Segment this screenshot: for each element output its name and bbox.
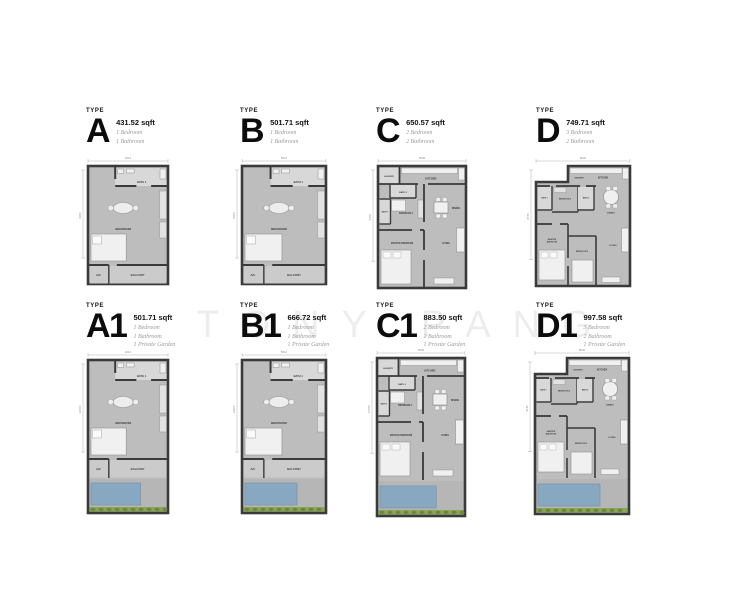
shrub [593, 509, 598, 512]
room-label-dining: DINING [607, 213, 615, 215]
room-label-dining: DINING [451, 399, 460, 402]
sofa [457, 228, 465, 252]
sofa [456, 420, 464, 444]
unit-feature: 1 Bedroom [116, 129, 155, 138]
unit-feature: 1 Bathroom [133, 333, 175, 342]
floorplan-D1: 80929745LAUNDRYKITCHENBATH 1BEDROOM 3BAT… [523, 347, 634, 523]
room-label-bath1: BATH 1 [381, 403, 388, 406]
bed [571, 452, 592, 474]
dimension-label: 5012 [281, 156, 288, 160]
shrub [154, 508, 159, 511]
unit-feature: 2 Bathroom [566, 138, 605, 147]
balcony-area [90, 266, 167, 284]
shrub [379, 511, 384, 514]
chair [605, 379, 610, 383]
shrub [585, 509, 590, 512]
dimension-label: 8092 [580, 156, 587, 160]
tv-console [602, 277, 620, 283]
unit-type-letter: C1 [376, 312, 416, 341]
room-label-bath1: BATH 1 [294, 374, 304, 378]
shrub [308, 508, 313, 511]
stage: TONY PANG TYPE A 431.52 sqft 1 Bedroom 1… [0, 0, 735, 600]
chair [442, 406, 447, 410]
room-label-bedroom2: BEDROOM 2 [398, 405, 413, 407]
sink [282, 169, 290, 173]
shrub [395, 511, 400, 514]
unit-area: 666.72 sqft [287, 313, 329, 322]
chair [442, 390, 447, 394]
shrub [90, 508, 95, 511]
shrub [292, 508, 297, 511]
fridge [622, 360, 628, 371]
table [113, 397, 133, 408]
room-label-bedroom2: BEDROOM 2 [576, 251, 589, 253]
room-label-bedroom: BEDROOM [271, 227, 287, 231]
cabinet [318, 222, 325, 238]
tv-console [434, 278, 454, 284]
room-label-living: LIVING [441, 434, 449, 437]
sink [282, 363, 290, 367]
fridge [459, 168, 465, 180]
shrub [451, 511, 456, 514]
shower [318, 363, 324, 373]
floorplan-svg: 80929745LAUNDRYKITCHENBATH 1BEDROOM 3BAT… [523, 347, 634, 518]
shrub [435, 511, 440, 514]
bed [572, 260, 593, 282]
room-label-bedroom3: BEDROOM 3 [559, 199, 572, 201]
dimension-label: 4012 [125, 156, 132, 160]
shrub [122, 508, 127, 511]
fridge [458, 360, 464, 372]
room-label-bedroom2: BEDROOM 2 [399, 213, 414, 215]
pillow [541, 252, 548, 258]
unit-feature: 1 Bathroom [116, 138, 155, 147]
unit-feature: 3 Bedroom [566, 129, 605, 138]
room-label-ac: A/C [251, 467, 256, 471]
floorplan-svg: 50129300A/CBALCONYBATH 1BEDROOM [230, 155, 331, 288]
floorplan-D: 80928745LAUNDRYKITCHENBATH 1BEDROOM 3BAT… [524, 155, 635, 295]
sofa [621, 420, 628, 444]
unit-feature: 2 Bedroom [406, 129, 445, 138]
chair [289, 399, 295, 405]
shrub [300, 508, 305, 511]
unit-feature: 2 Bathroom [423, 333, 465, 342]
shower [160, 169, 166, 179]
chair [133, 399, 139, 405]
unit-card-C: TYPE C 650.57 sqft 2 Bedroom 2 Bathroom [376, 108, 526, 146]
dimension-label: 9745 [525, 405, 529, 412]
pool [538, 484, 600, 506]
unit-feature: 1 Bedroom [133, 324, 175, 333]
shrub [617, 509, 622, 512]
room-label-bedroom3: BEDROOM 3 [558, 391, 571, 393]
unit-area: 997.58 sqft [583, 313, 625, 322]
shrub [403, 511, 408, 514]
kitchen-counter [570, 168, 622, 174]
unit-card-D1: TYPE D1 997.58 sqft 3 Bedroom 2 Bathroom… [536, 303, 686, 350]
room-label-laundry: LAUNDRY [574, 177, 584, 180]
room-label-kitchen: KITCHEN [425, 178, 436, 181]
wardrobe [318, 385, 325, 413]
floorplan-sheet: { "watermark": "TONY PANG", "colors": { … [0, 0, 735, 600]
pillow [247, 236, 256, 244]
chair [443, 198, 448, 202]
sink [126, 363, 134, 367]
pillow [540, 444, 547, 450]
unit-type-letter: C [376, 117, 399, 146]
cabinet [160, 222, 167, 238]
pillow [383, 252, 391, 258]
dining-table [603, 382, 618, 397]
dimension-label: 4012 [125, 350, 132, 354]
unit-feature: 1 Bedroom [287, 324, 329, 333]
pillow [393, 252, 401, 258]
shrub [553, 509, 558, 512]
unit-feature: 2 Bedroom [423, 324, 465, 333]
shrub [244, 508, 249, 511]
room-label-balcony: BALCONY [287, 467, 301, 471]
floorplan-svg: 553512030LAUNDRYKITCHENBATH 2BEDROOM 2BA… [365, 347, 470, 520]
cabinet [160, 416, 167, 432]
shrub [268, 508, 273, 511]
shrub [443, 511, 448, 514]
room-label-balcony: BALCONY [131, 273, 145, 277]
shrub [276, 508, 281, 511]
toilet [273, 363, 279, 368]
wardrobe [554, 188, 566, 193]
room-label-kitchen: KITCHEN [424, 370, 435, 373]
floorplan-A: 40129300A/CBALCONYBATH 1BEDROOM [76, 155, 173, 293]
shrub [459, 511, 464, 514]
chair [289, 205, 295, 211]
room-label-bath1: BATH 1 [541, 197, 547, 200]
dining-table [433, 394, 447, 405]
floorplan-C1: 553512030LAUNDRYKITCHENBATH 2BEDROOM 2BA… [365, 347, 470, 525]
room-label-bath2: BATH 2 [399, 191, 408, 194]
dining-table [604, 190, 619, 205]
dimension-label: 9300 [232, 212, 236, 219]
pillow [392, 444, 400, 450]
unit-type-letter: A1 [86, 312, 126, 341]
chair [435, 406, 440, 410]
room-label-living: LIVING [609, 245, 617, 247]
floorplan-svg: 55359300LAUNDRYKITCHENBATH 2BEDROOM 2BAT… [366, 155, 471, 292]
dimension-label: 9300 [78, 212, 82, 219]
bed [391, 392, 405, 403]
shrub [601, 509, 606, 512]
tv-console [433, 470, 453, 476]
kitchen-counter [569, 360, 621, 366]
wardrobe [318, 191, 325, 219]
room-label-laundry: LAUNDRY [573, 369, 583, 372]
pillow [549, 444, 556, 450]
room-label-bath2: BATH 2 [582, 389, 588, 392]
floorplan-B: 50129300A/CBALCONYBATH 1BEDROOM [230, 155, 331, 293]
kitchen-counter [402, 168, 458, 174]
table [113, 203, 133, 214]
unit-feature: 2 Bathroom [583, 333, 625, 342]
sofa [622, 228, 629, 252]
chair [133, 205, 139, 211]
shrub [260, 508, 265, 511]
room-label-bath2: BATH 2 [398, 383, 407, 386]
toilet [273, 169, 279, 174]
unit-card-A: TYPE A 431.52 sqft 1 Bedroom 1 Bathroom [86, 108, 236, 146]
chair [443, 214, 448, 218]
unit-feature: 2 Bathroom [406, 138, 445, 147]
chair [605, 396, 610, 400]
balcony-area [90, 460, 167, 478]
room-label-bedroom: BEDROOM [115, 421, 131, 425]
shrub [569, 509, 574, 512]
unit-card-B1: TYPE B1 666.72 sqft 1 Bedroom 1 Bathroom… [240, 303, 390, 350]
room-label-bedroom: BEDROOM [271, 421, 287, 425]
wardrobe [417, 392, 423, 410]
shrub [609, 509, 614, 512]
dimension-label: 12030 [367, 405, 371, 413]
shrub [537, 509, 542, 512]
chair [612, 379, 617, 383]
kitchen-counter [401, 360, 457, 366]
toilet [118, 169, 124, 174]
floorplan-svg: 501212000A/CBALCONYBATH 1BEDROOM [230, 349, 331, 517]
room-label-bath1: BATH 1 [137, 374, 147, 378]
unit-feature: 3 Bedroom [583, 324, 625, 333]
room-label-master: MASTER BEDROOM [391, 242, 413, 245]
shrub [98, 508, 103, 511]
shower [318, 169, 324, 179]
unit-type-letter: B1 [240, 312, 280, 341]
room-label-bedroom2: BEDROOM 2 [575, 443, 588, 445]
chair [264, 399, 270, 405]
unit-type-letter: B [240, 117, 263, 146]
room-label-bath1: BATH 1 [137, 180, 147, 184]
room-label-bath1: BATH 1 [382, 211, 389, 214]
chair [613, 204, 618, 208]
floorplan-svg: 40129300A/CBALCONYBATH 1BEDROOM [76, 155, 173, 288]
pool [380, 486, 436, 508]
shrub [577, 509, 582, 512]
balcony-area [244, 266, 325, 284]
shrub [252, 508, 257, 511]
room-label-balcony: BALCONY [131, 467, 145, 471]
chair [264, 205, 270, 211]
room-label-kitchen: KITCHEN [597, 370, 608, 372]
room-label-kitchen: KITCHEN [598, 178, 609, 180]
wardrobe [418, 200, 424, 218]
dimension-label: 8092 [579, 348, 586, 352]
balcony-area [244, 460, 325, 478]
dimension-label: 12000 [78, 405, 82, 413]
shrub [411, 511, 416, 514]
table [269, 397, 289, 408]
floorplan-C: 55359300LAUNDRYKITCHENBATH 2BEDROOM 2BAT… [366, 155, 471, 297]
room-label-master: MASTERBEDROOM [546, 430, 557, 436]
unit-card-A1: TYPE A1 501.71 sqft 1 Bedroom 1 Bathroom… [86, 303, 236, 350]
dimension-label: 9300 [368, 214, 372, 221]
unit-area: 883.50 sqft [423, 313, 465, 322]
room-label-master: MASTER BEDROOM [390, 434, 412, 437]
chair [613, 187, 618, 191]
unit-area: 650.57 sqft [406, 118, 445, 127]
dining-table [434, 202, 448, 213]
floorplan-svg: 401212000A/CBALCONYBATH 1BEDROOM [76, 349, 173, 517]
unit-type-letter: A [86, 117, 109, 146]
room-label-master: MASTERBEDROOM [547, 238, 558, 244]
room-label-laundry: LAUNDRY [383, 367, 394, 370]
room-label-laundry: LAUNDRY [384, 175, 395, 178]
tv-console [601, 469, 619, 475]
dimension-label: 5012 [281, 350, 288, 354]
dimension-label: 12000 [232, 405, 236, 413]
shrub [316, 508, 321, 511]
unit-area: 501.71 sqft [133, 313, 175, 322]
floorplan-B1: 501212000A/CBALCONYBATH 1BEDROOM [230, 349, 331, 522]
pillow [382, 444, 390, 450]
unit-area: 501.71 sqft [270, 118, 309, 127]
room-label-dining: DINING [452, 207, 461, 210]
pool [91, 483, 141, 505]
shrub [387, 511, 392, 514]
fridge [623, 168, 629, 179]
room-label-ac: A/C [251, 273, 256, 277]
room-label-bath1: BATH 1 [540, 389, 546, 392]
shrub [545, 509, 550, 512]
shrub [130, 508, 135, 511]
unit-area: 431.52 sqft [116, 118, 155, 127]
chair [436, 198, 441, 202]
chair [436, 214, 441, 218]
floorplan-A1: 401212000A/CBALCONYBATH 1BEDROOM [76, 349, 173, 522]
shrub [106, 508, 111, 511]
unit-type-letter: D1 [536, 312, 576, 341]
pillow [93, 236, 102, 244]
pillow [247, 430, 256, 438]
wardrobe [160, 191, 167, 219]
dimension-label: 5535 [418, 348, 425, 352]
unit-type-letter: D [536, 117, 559, 146]
room-label-balcony: BALCONY [287, 273, 301, 277]
unit-feature: 1 Bathroom [270, 138, 309, 147]
shrub [561, 509, 566, 512]
shrub [138, 508, 143, 511]
shower [160, 363, 166, 373]
shrub [427, 511, 432, 514]
unit-area: 749.71 sqft [566, 118, 605, 127]
table [269, 203, 289, 214]
room-label-bath2: BATH 2 [583, 197, 589, 200]
unit-card-D: TYPE D 749.71 sqft 3 Bedroom 2 Bathroom [536, 108, 686, 146]
room-label-living: LIVING [608, 437, 616, 439]
room-label-living: LIVING [442, 242, 450, 245]
room-label-bedroom: BEDROOM [115, 227, 131, 231]
chair [108, 399, 114, 405]
dimension-label: 5535 [419, 156, 426, 160]
shrub [284, 508, 289, 511]
chair [612, 396, 617, 400]
unit-card-C1: TYPE C1 883.50 sqft 2 Bedroom 2 Bathroom… [376, 303, 526, 350]
room-label-ac: A/C [96, 467, 101, 471]
bed [392, 200, 406, 211]
sink [126, 169, 134, 173]
shrub [419, 511, 424, 514]
chair [606, 204, 611, 208]
wardrobe [160, 385, 167, 413]
chair [108, 205, 114, 211]
shrub [162, 508, 167, 511]
room-label-bath1: BATH 1 [294, 180, 304, 184]
chair [435, 390, 440, 394]
unit-feature: 1 Bedroom [270, 129, 309, 138]
pool [245, 483, 297, 505]
chair [606, 187, 611, 191]
unit-card-B: TYPE B 501.71 sqft 1 Bedroom 1 Bathroom [240, 108, 390, 146]
wardrobe [553, 380, 565, 385]
dimension-label: 8745 [526, 213, 530, 220]
unit-feature: 1 Bathroom [287, 333, 329, 342]
room-label-ac: A/C [96, 273, 101, 277]
pillow [93, 430, 102, 438]
toilet [118, 363, 124, 368]
cabinet [318, 416, 325, 432]
shrub [146, 508, 151, 511]
floorplan-svg: 80928745LAUNDRYKITCHENBATH 1BEDROOM 3BAT… [524, 155, 635, 290]
pillow [550, 252, 557, 258]
shrub [114, 508, 119, 511]
room-label-dining: DINING [606, 405, 614, 407]
